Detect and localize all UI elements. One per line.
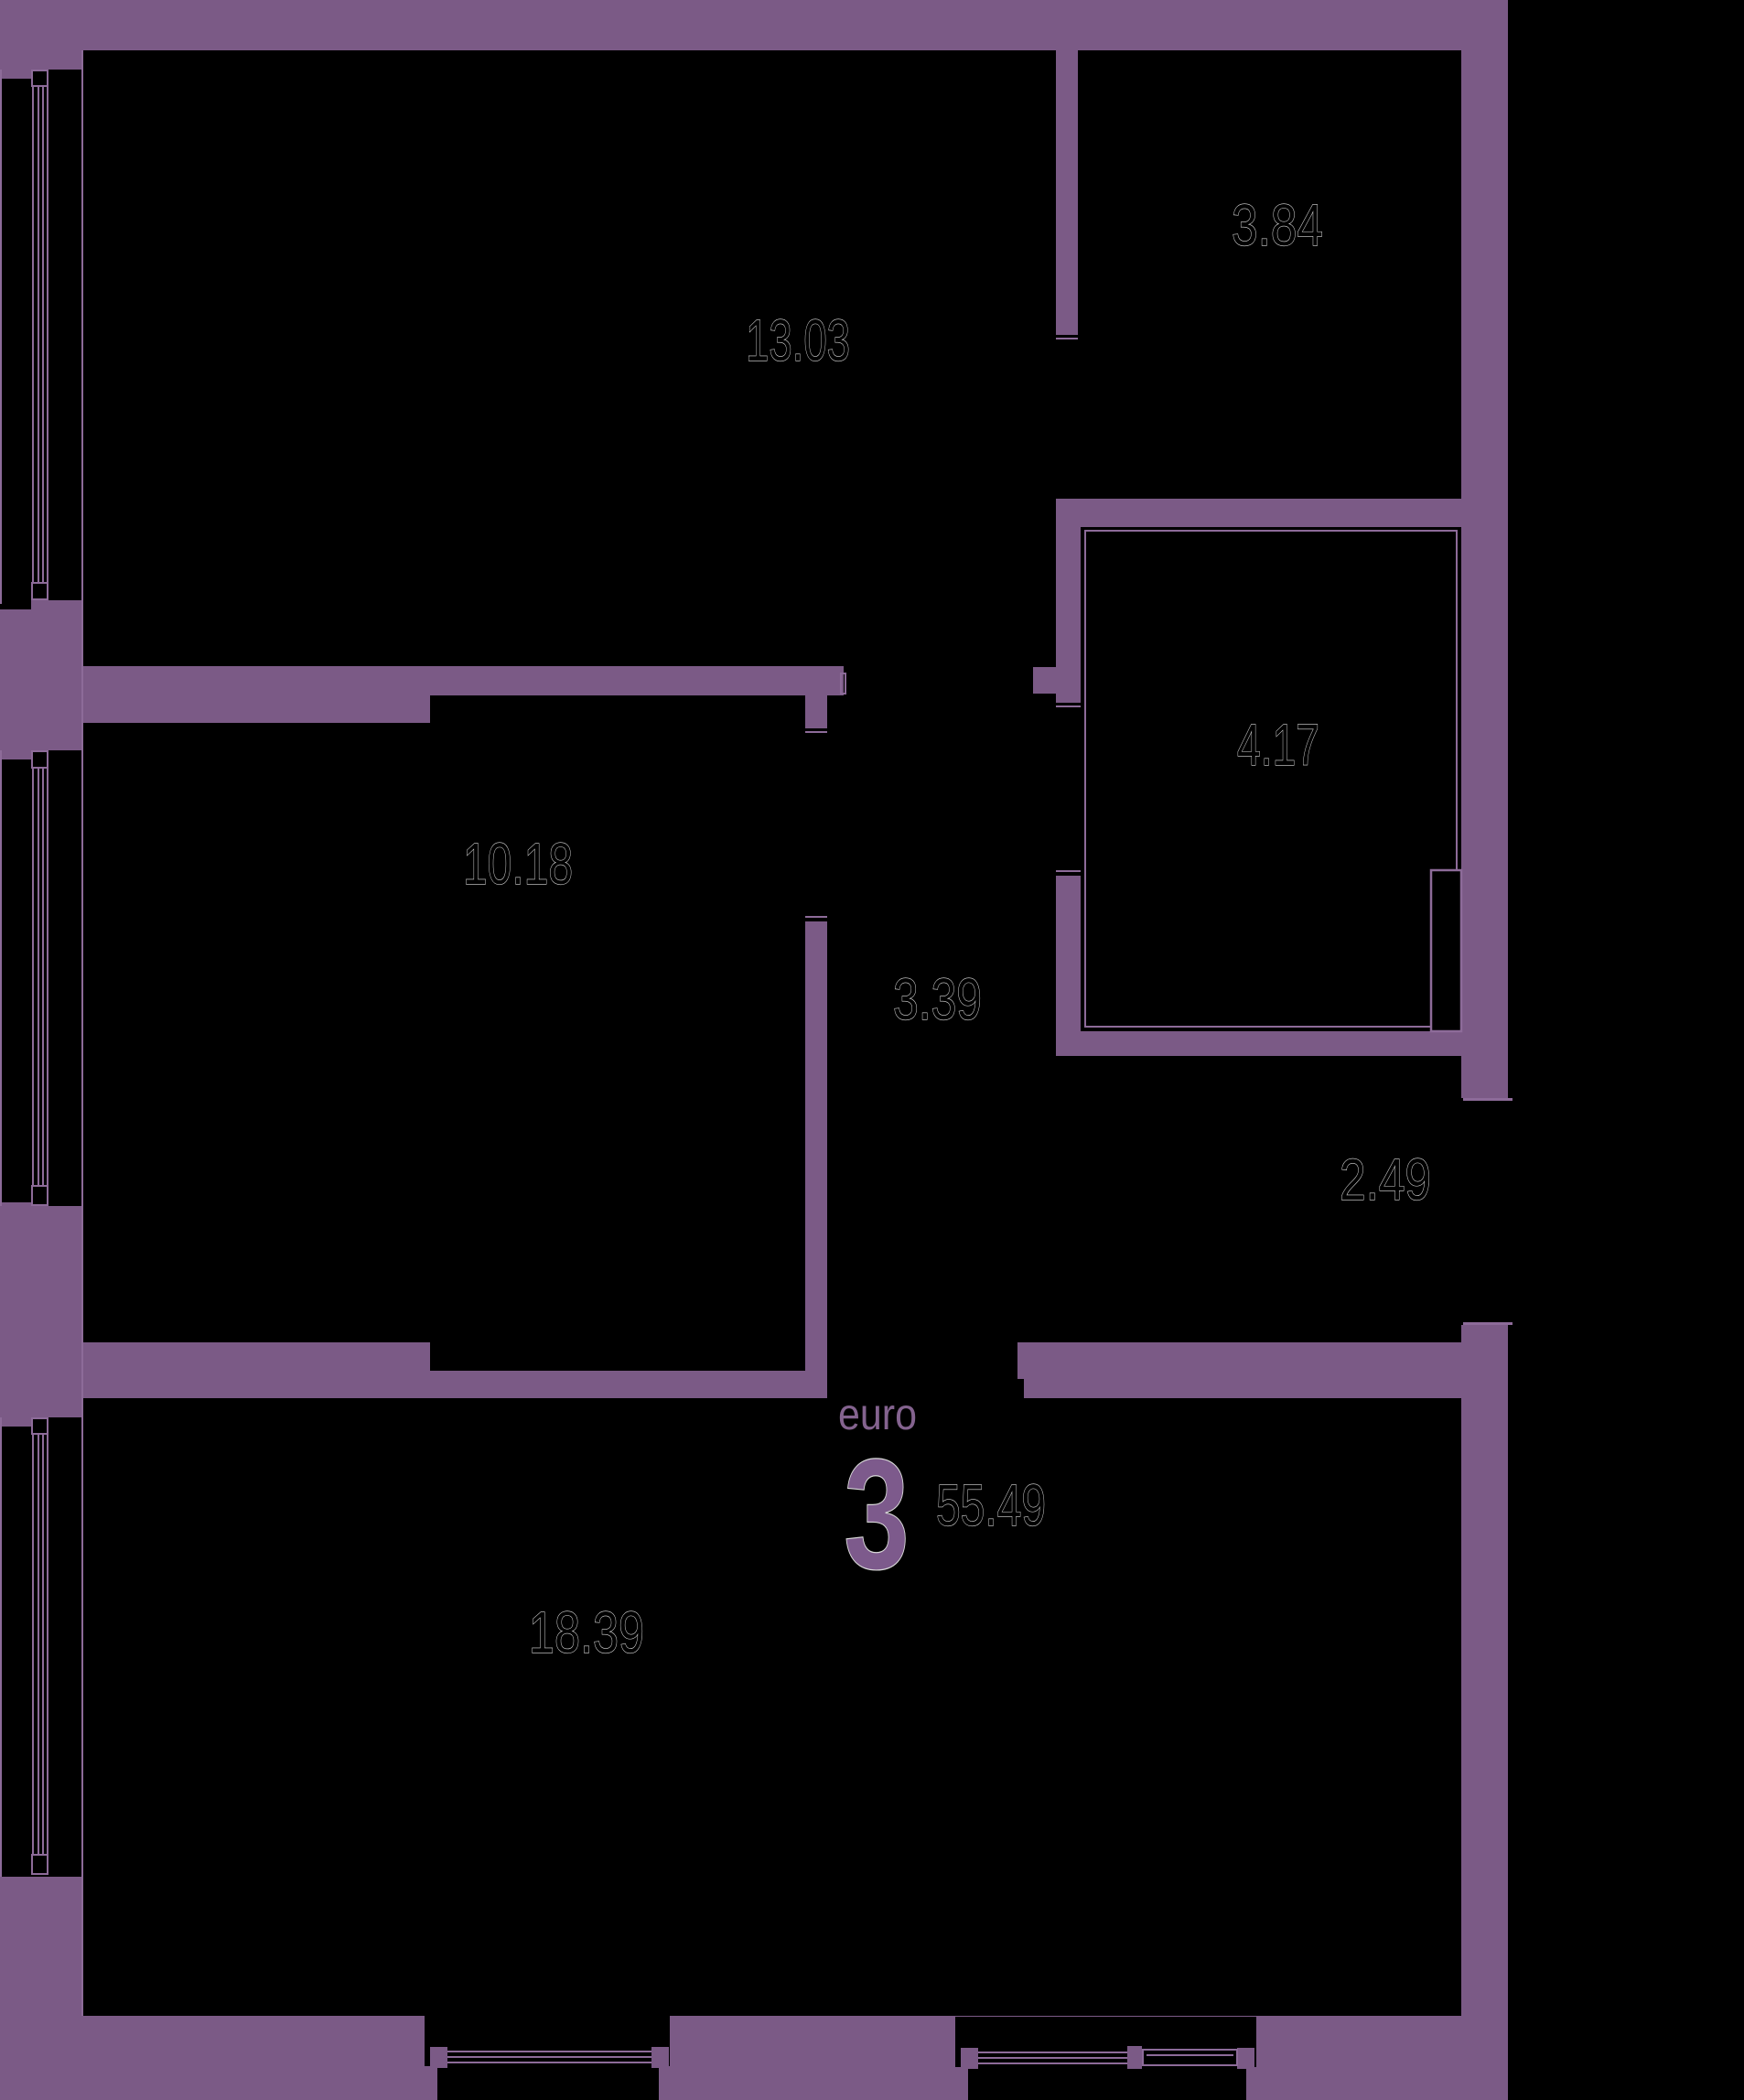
svg-text:18.39: 18.39 xyxy=(529,1599,644,1665)
svg-text:2.49: 2.49 xyxy=(1340,1147,1431,1212)
svg-text:10.18: 10.18 xyxy=(463,831,573,897)
svg-text:3: 3 xyxy=(844,1427,910,1602)
svg-text:3.84: 3.84 xyxy=(1232,192,1323,258)
svg-text:13.03: 13.03 xyxy=(746,307,850,373)
svg-text:4.17: 4.17 xyxy=(1237,712,1319,778)
svg-text:3.39: 3.39 xyxy=(893,966,982,1032)
svg-text:55.49: 55.49 xyxy=(936,1472,1046,1538)
